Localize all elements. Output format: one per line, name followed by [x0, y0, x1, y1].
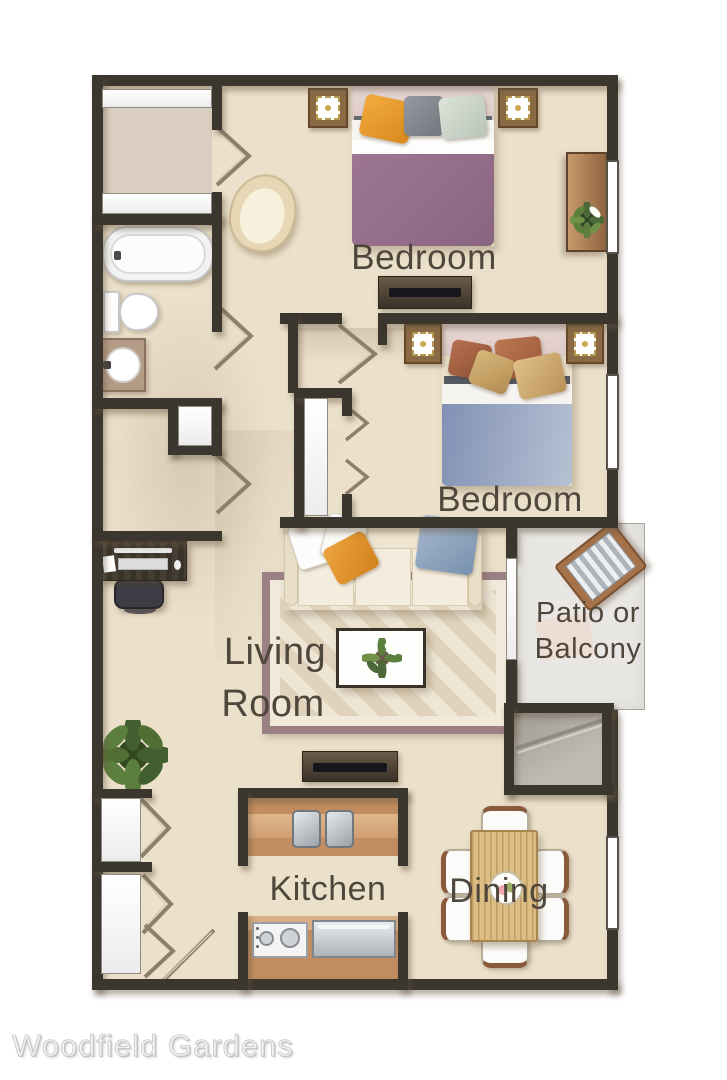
wall	[238, 912, 248, 990]
kitchen-counter	[248, 798, 398, 856]
appliance-handle	[318, 925, 390, 929]
bathtub-faucet	[114, 251, 121, 260]
door-swing-icon	[214, 452, 256, 516]
bathroom-vanity	[100, 338, 146, 392]
desk	[99, 541, 187, 581]
wall	[386, 313, 618, 324]
lamp-bulb	[582, 341, 588, 347]
plan-title: Woodfield Gardens	[12, 1028, 432, 1064]
closet-interior	[103, 108, 212, 193]
potted-plant-icon	[362, 638, 402, 678]
bed	[352, 86, 494, 246]
door-swing-icon	[214, 124, 256, 188]
wall	[212, 398, 222, 456]
wall	[92, 789, 152, 798]
toilet-bowl	[119, 293, 159, 331]
nightstand-lamp	[308, 88, 348, 128]
wall	[398, 912, 408, 990]
nightstand-lamp	[404, 324, 442, 364]
wall	[212, 214, 222, 332]
countertop-appliance	[312, 920, 396, 958]
wall	[342, 494, 352, 518]
mouse	[174, 560, 181, 570]
wall	[92, 531, 222, 541]
wall	[212, 84, 222, 130]
wall	[288, 313, 298, 393]
lamp-bulb	[325, 105, 331, 111]
nightstand-lamp	[498, 88, 538, 128]
wall	[504, 703, 514, 795]
door-swing-icon	[138, 796, 176, 860]
wall	[504, 703, 614, 713]
wall	[238, 788, 248, 866]
burner	[259, 931, 274, 946]
stove-knob	[256, 945, 259, 948]
floor-plan: Bedroom Bedroom Living Room Patio or Bal…	[0, 0, 727, 1080]
living-room-label-line2: Room	[198, 685, 348, 724]
potted-plant-icon	[98, 720, 168, 790]
door-swing-icon	[344, 458, 372, 496]
closet-door	[102, 193, 212, 214]
toilet-tank	[103, 291, 120, 333]
wall	[238, 788, 408, 798]
stove-knob	[256, 927, 259, 930]
wall	[92, 214, 222, 225]
bathtub	[102, 226, 214, 282]
wall	[504, 785, 614, 795]
bed-blanket	[442, 404, 572, 486]
sink-bowl	[325, 810, 354, 848]
closet-door	[102, 89, 212, 108]
office-chair	[114, 579, 164, 609]
keyboard	[118, 558, 168, 570]
tv-stand	[302, 751, 398, 782]
monitor	[114, 548, 172, 553]
window	[606, 374, 619, 470]
armchair-cushion	[234, 183, 290, 248]
nightstand-lamp	[566, 324, 604, 364]
bedroom2-label: Bedroom	[420, 482, 600, 518]
wall	[294, 388, 304, 528]
living-room-label-line1: Living	[200, 633, 350, 672]
papers	[102, 555, 116, 573]
kitchen-sink	[292, 810, 356, 850]
lamp-bulb	[515, 105, 521, 111]
wall	[92, 862, 152, 872]
closet-door	[178, 406, 212, 446]
burner	[280, 928, 300, 948]
sofa	[284, 522, 482, 610]
stove-knob	[256, 936, 259, 939]
patio-label-line1: Patio or	[528, 599, 648, 629]
closet-door	[101, 874, 141, 974]
pillow-sage	[438, 94, 488, 141]
tv-screen	[389, 288, 461, 297]
stove	[252, 922, 308, 958]
wall	[342, 396, 352, 416]
tv-stand	[378, 276, 472, 309]
kitchen-counter	[248, 916, 398, 980]
closet-door	[101, 798, 141, 862]
wall	[398, 788, 408, 866]
closet-door	[304, 398, 328, 516]
wall	[506, 528, 517, 560]
window	[606, 836, 619, 930]
kitchen-label: Kitchen	[253, 872, 403, 907]
wall	[92, 75, 618, 86]
bedroom1-label: Bedroom	[334, 240, 514, 276]
bed	[442, 320, 572, 486]
dining-label: Dining	[429, 874, 569, 909]
tv-screen	[313, 763, 387, 772]
sink-faucet	[103, 361, 111, 369]
potted-plant-icon	[570, 202, 604, 238]
bathtub-basin	[110, 234, 206, 274]
bed-blanket	[352, 154, 494, 246]
lamp-bulb	[420, 341, 426, 347]
door-swing-icon	[336, 322, 382, 386]
wall	[602, 703, 612, 795]
patio-label-line2: Balcony	[528, 635, 648, 665]
sliding-glass-door	[506, 558, 517, 660]
sink-bowl	[292, 810, 321, 848]
window	[606, 160, 619, 254]
wall	[92, 979, 618, 990]
